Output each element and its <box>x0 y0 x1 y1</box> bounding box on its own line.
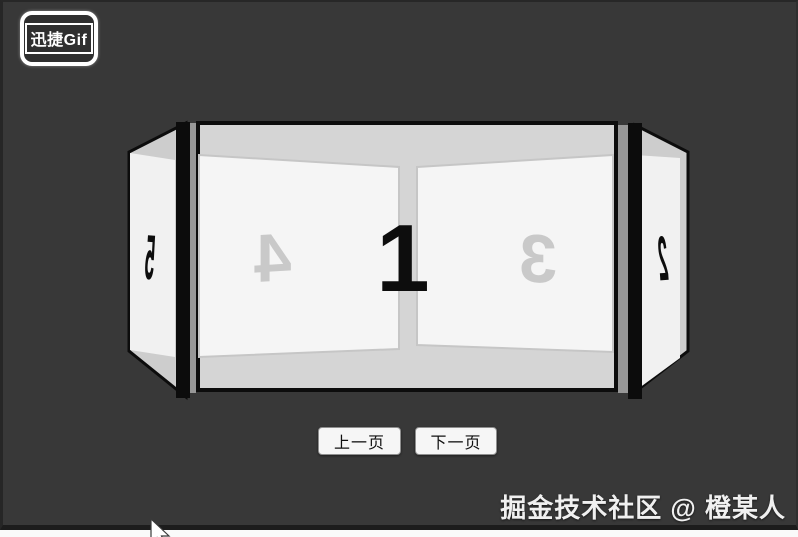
page-4-number: 4 <box>254 223 292 293</box>
prev-page-button[interactable]: 上一页 <box>318 427 401 455</box>
cursor-arrow <box>151 519 169 537</box>
page-1-number: 1 <box>376 211 429 307</box>
gif-recorder-logo-label: 迅捷Gif <box>25 23 94 54</box>
mouse-cursor-icon <box>147 518 173 537</box>
screenshot-root: 迅捷Gif 5 4 1 3 2 上一页 下一页 掘金技术社区 @ 橙某人 <box>0 0 798 537</box>
gif-recorder-logo: 迅捷Gif <box>20 11 98 66</box>
juejin-watermark: 掘金技术社区 @ 橙某人 <box>500 488 786 525</box>
next-page-button[interactable]: 下一页 <box>415 427 497 455</box>
page-3-number: 3 <box>519 224 557 294</box>
